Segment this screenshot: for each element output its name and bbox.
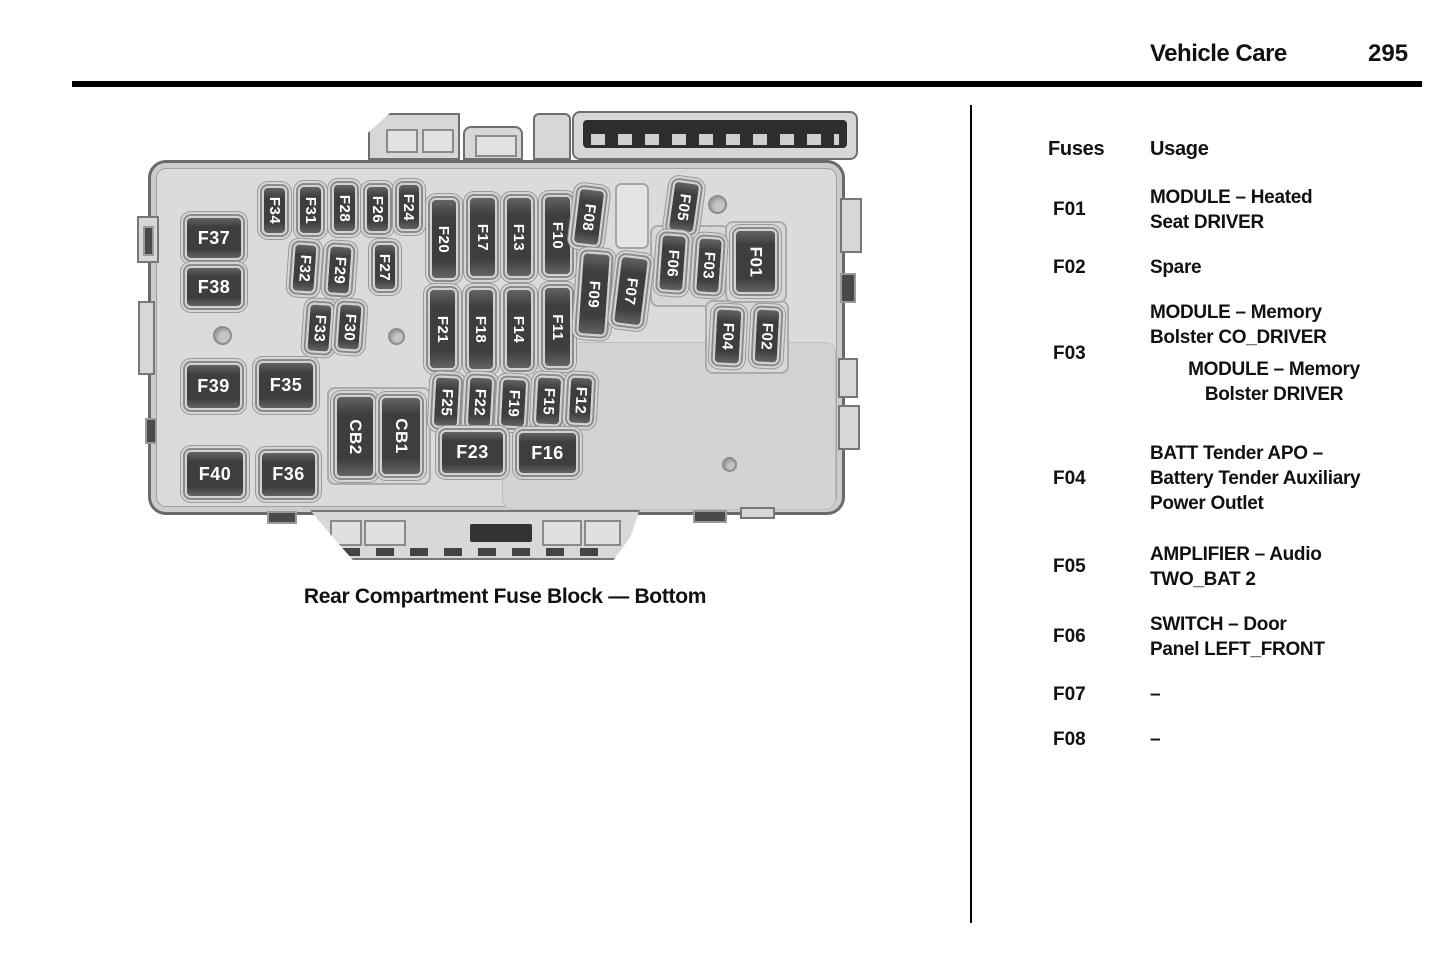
fuse-label: F33: [310, 314, 329, 342]
fuse-F25: F25: [432, 375, 462, 428]
fuse-label: F32: [295, 254, 314, 282]
fuse-F17: F17: [468, 196, 497, 278]
table-row-F03: F03MODULE – MemoryBolster CO_DRIVERMODUL…: [1040, 300, 1440, 407]
screw-hole: [213, 326, 232, 345]
fuse-label: F35: [270, 375, 303, 396]
diagram-caption: Rear Compartment Fuse Block — Bottom: [100, 585, 910, 609]
fuse-F10: F10: [543, 195, 572, 276]
fuse-F14: F14: [505, 288, 533, 370]
fuse-F11: F11: [543, 286, 572, 368]
fuse-F01: F01: [734, 229, 777, 294]
fuse-F21: F21: [428, 288, 457, 370]
fuse-F23: F23: [440, 430, 505, 475]
usage-line: MODULE – Memory: [1150, 300, 1440, 325]
fuse-label: F13: [511, 223, 528, 250]
fuse-usage: Spare: [1150, 255, 1440, 280]
fuse-label: CB2: [345, 419, 365, 455]
fuse-label: F05: [674, 192, 695, 221]
fuse-label: F40: [199, 464, 232, 485]
usage-line: Bolster CO_DRIVER: [1150, 325, 1440, 350]
usage-line: Battery Tender Auxiliary: [1150, 466, 1440, 491]
usage-line: Spare: [1150, 255, 1440, 280]
usage-entry: AMPLIFIER – AudioTWO_BAT 2: [1150, 542, 1440, 592]
fuse-id: F08: [1040, 727, 1150, 752]
usage-line: Panel LEFT_FRONT: [1150, 637, 1440, 662]
fuse-label: CB1: [391, 418, 411, 454]
fuse-id: F06: [1040, 612, 1150, 662]
usage-entry: MODULE – HeatedSeat DRIVER: [1150, 185, 1440, 235]
fuse-usage: –: [1150, 682, 1440, 707]
fuse-usage: SWITCH – DoorPanel LEFT_FRONT: [1150, 612, 1440, 662]
fuse-F16: F16: [517, 431, 578, 475]
fuse-F27: F27: [373, 243, 397, 291]
usage-line: MODULE – Memory: [1150, 357, 1398, 382]
usage-entry: SWITCH – DoorPanel LEFT_FRONT: [1150, 612, 1440, 662]
fuse-F15: F15: [534, 375, 564, 426]
fuse-F22: F22: [466, 375, 495, 428]
usage-line: TWO_BAT 2: [1150, 567, 1440, 592]
fuse-F02: F02: [753, 307, 782, 364]
fuse-label: F37: [198, 228, 231, 249]
usage-entry: MODULE – MemoryBolster CO_DRIVER: [1150, 300, 1440, 350]
fuse-id: F02: [1040, 255, 1150, 280]
fuse-label: F34: [266, 197, 283, 224]
fuse-block-diagram: F37F38F39F35F40F36F34F31F28F26F24F32F29F…: [75, 103, 885, 623]
table-row-F08: F08–: [1040, 727, 1440, 752]
fuse-F12: F12: [567, 375, 595, 425]
fuse-label: F08: [579, 202, 599, 231]
screw-hole: [722, 457, 737, 472]
fuse-usage: AMPLIFIER – AudioTWO_BAT 2: [1150, 542, 1440, 592]
fuse-CB1: CB1: [380, 396, 422, 476]
fuse-label: F19: [504, 389, 522, 417]
fuse-label: F11: [549, 314, 566, 341]
fuse-F29: F29: [325, 244, 353, 296]
fuse-F24: F24: [397, 183, 421, 231]
fuse-label: F03: [700, 251, 719, 279]
fuse-layer: F37F38F39F35F40F36F34F31F28F26F24F32F29F…: [75, 103, 885, 623]
fuse-usage: MODULE – MemoryBolster CO_DRIVERMODULE –…: [1150, 300, 1440, 407]
fuse-label: F06: [663, 249, 682, 277]
fuse-F36: F36: [260, 451, 317, 498]
fuse-label: F30: [340, 313, 359, 341]
fuse-label: F16: [531, 443, 564, 464]
usage-entry: MODULE – MemoryBolster DRIVER: [1150, 357, 1440, 407]
page-number: 295: [1368, 40, 1408, 68]
usage-line: Seat DRIVER: [1150, 210, 1440, 235]
usage-entry: –: [1150, 682, 1440, 707]
fuse-label: F09: [585, 280, 604, 308]
fuse-F30: F30: [335, 302, 363, 352]
usage-line: MODULE – Heated: [1150, 185, 1440, 210]
fuse-label: F31: [302, 196, 319, 223]
fuse-label: F27: [377, 253, 394, 280]
fuse-label: F28: [336, 194, 353, 221]
fuse-F32: F32: [290, 242, 318, 294]
fuse-label: F36: [272, 464, 305, 485]
fuse-label: F38: [198, 277, 231, 298]
fuse-CB2: CB2: [335, 395, 375, 478]
fuse-F40: F40: [185, 450, 245, 498]
table-row-F07: F07–: [1040, 682, 1440, 707]
fuse-F05: F05: [667, 179, 702, 234]
table-row-F05: F05AMPLIFIER – AudioTWO_BAT 2: [1040, 542, 1440, 592]
usage-line: Bolster DRIVER: [1150, 382, 1398, 407]
fuse-label: F01: [745, 246, 765, 277]
fuse-F31: F31: [298, 185, 323, 235]
fuse-label: F20: [436, 225, 453, 252]
fuse-label: F02: [758, 322, 776, 350]
fuse-label: F26: [369, 195, 386, 222]
usage-entry: –: [1150, 727, 1440, 752]
table-rows: F01MODULE – HeatedSeat DRIVERF02SpareF03…: [1040, 185, 1440, 752]
table-row-F01: F01MODULE – HeatedSeat DRIVER: [1040, 185, 1440, 235]
screw-hole: [388, 328, 405, 345]
fuse-id: F01: [1040, 185, 1150, 235]
fuse-label: F12: [571, 386, 589, 414]
fuse-F19: F19: [499, 377, 529, 428]
fuse-label: F04: [719, 322, 737, 350]
fuse-label: F17: [474, 223, 491, 250]
fuse-F28: F28: [332, 183, 357, 233]
table-row-F06: F06SWITCH – DoorPanel LEFT_FRONT: [1040, 612, 1440, 662]
fuse-F35: F35: [257, 361, 315, 410]
fuse-label: F23: [456, 442, 489, 463]
fuse-label: F18: [473, 316, 490, 343]
usage-line: –: [1150, 682, 1440, 707]
fuse-F09: F09: [576, 251, 612, 337]
fuse-usage: –: [1150, 727, 1440, 752]
fuse-F18: F18: [467, 288, 495, 371]
fuse-F33: F33: [305, 302, 333, 354]
table-header: Fuses Usage: [1040, 138, 1440, 161]
column-divider: [970, 105, 972, 923]
fuse-F06: F06: [657, 233, 688, 293]
usage-entry: Spare: [1150, 255, 1440, 280]
fuses-column-header: Fuses: [1040, 138, 1150, 161]
fuse-F03: F03: [694, 236, 724, 295]
fuse-id: F03: [1040, 300, 1150, 407]
fuse-F26: F26: [365, 185, 390, 233]
fuse-label: F39: [197, 376, 230, 397]
fuse-label: F29: [330, 256, 349, 284]
usage-line: BATT Tender APO –: [1150, 441, 1440, 466]
fuse-usage-table: Fuses Usage F01MODULE – HeatedSeat DRIVE…: [1040, 138, 1440, 772]
fuse-F34: F34: [262, 186, 287, 235]
fuse-usage: MODULE – HeatedSeat DRIVER: [1150, 185, 1440, 235]
fuse-label: F21: [434, 315, 451, 342]
fuse-F38: F38: [185, 266, 243, 308]
fuse-label: F22: [471, 388, 489, 416]
fuse-id: F07: [1040, 682, 1150, 707]
fuse-F07: F07: [612, 254, 650, 327]
table-row-F02: F02Spare: [1040, 255, 1440, 280]
usage-line: AMPLIFIER – Audio: [1150, 542, 1440, 567]
fuse-id: F05: [1040, 542, 1150, 592]
screw-hole: [708, 195, 727, 214]
usage-line: SWITCH – Door: [1150, 612, 1440, 637]
page-title: Vehicle Care: [1150, 40, 1287, 68]
fuse-id: F04: [1040, 441, 1150, 516]
fuse-F37: F37: [185, 216, 243, 260]
usage-column-header: Usage: [1150, 138, 1440, 161]
fuse-F04: F04: [713, 307, 744, 365]
fuse-F39: F39: [185, 363, 242, 410]
fuse-label: F10: [549, 222, 566, 249]
usage-line: –: [1150, 727, 1440, 752]
fuse-label: F25: [437, 388, 455, 416]
fuse-label: F07: [621, 276, 641, 305]
fuse-label: F24: [401, 193, 418, 220]
usage-entry: BATT Tender APO –Battery Tender Auxiliar…: [1150, 441, 1440, 516]
usage-line: Power Outlet: [1150, 491, 1440, 516]
fuse-label: F14: [511, 315, 528, 342]
fuse-F13: F13: [505, 196, 533, 278]
table-row-F04: F04BATT Tender APO –Battery Tender Auxil…: [1040, 441, 1440, 516]
fuse-F20: F20: [430, 198, 458, 280]
header-rule: [72, 81, 1422, 87]
fuse-label: F15: [539, 387, 557, 415]
fuse-F08: F08: [572, 187, 607, 248]
fuse-usage: BATT Tender APO –Battery Tender Auxiliar…: [1150, 441, 1440, 516]
